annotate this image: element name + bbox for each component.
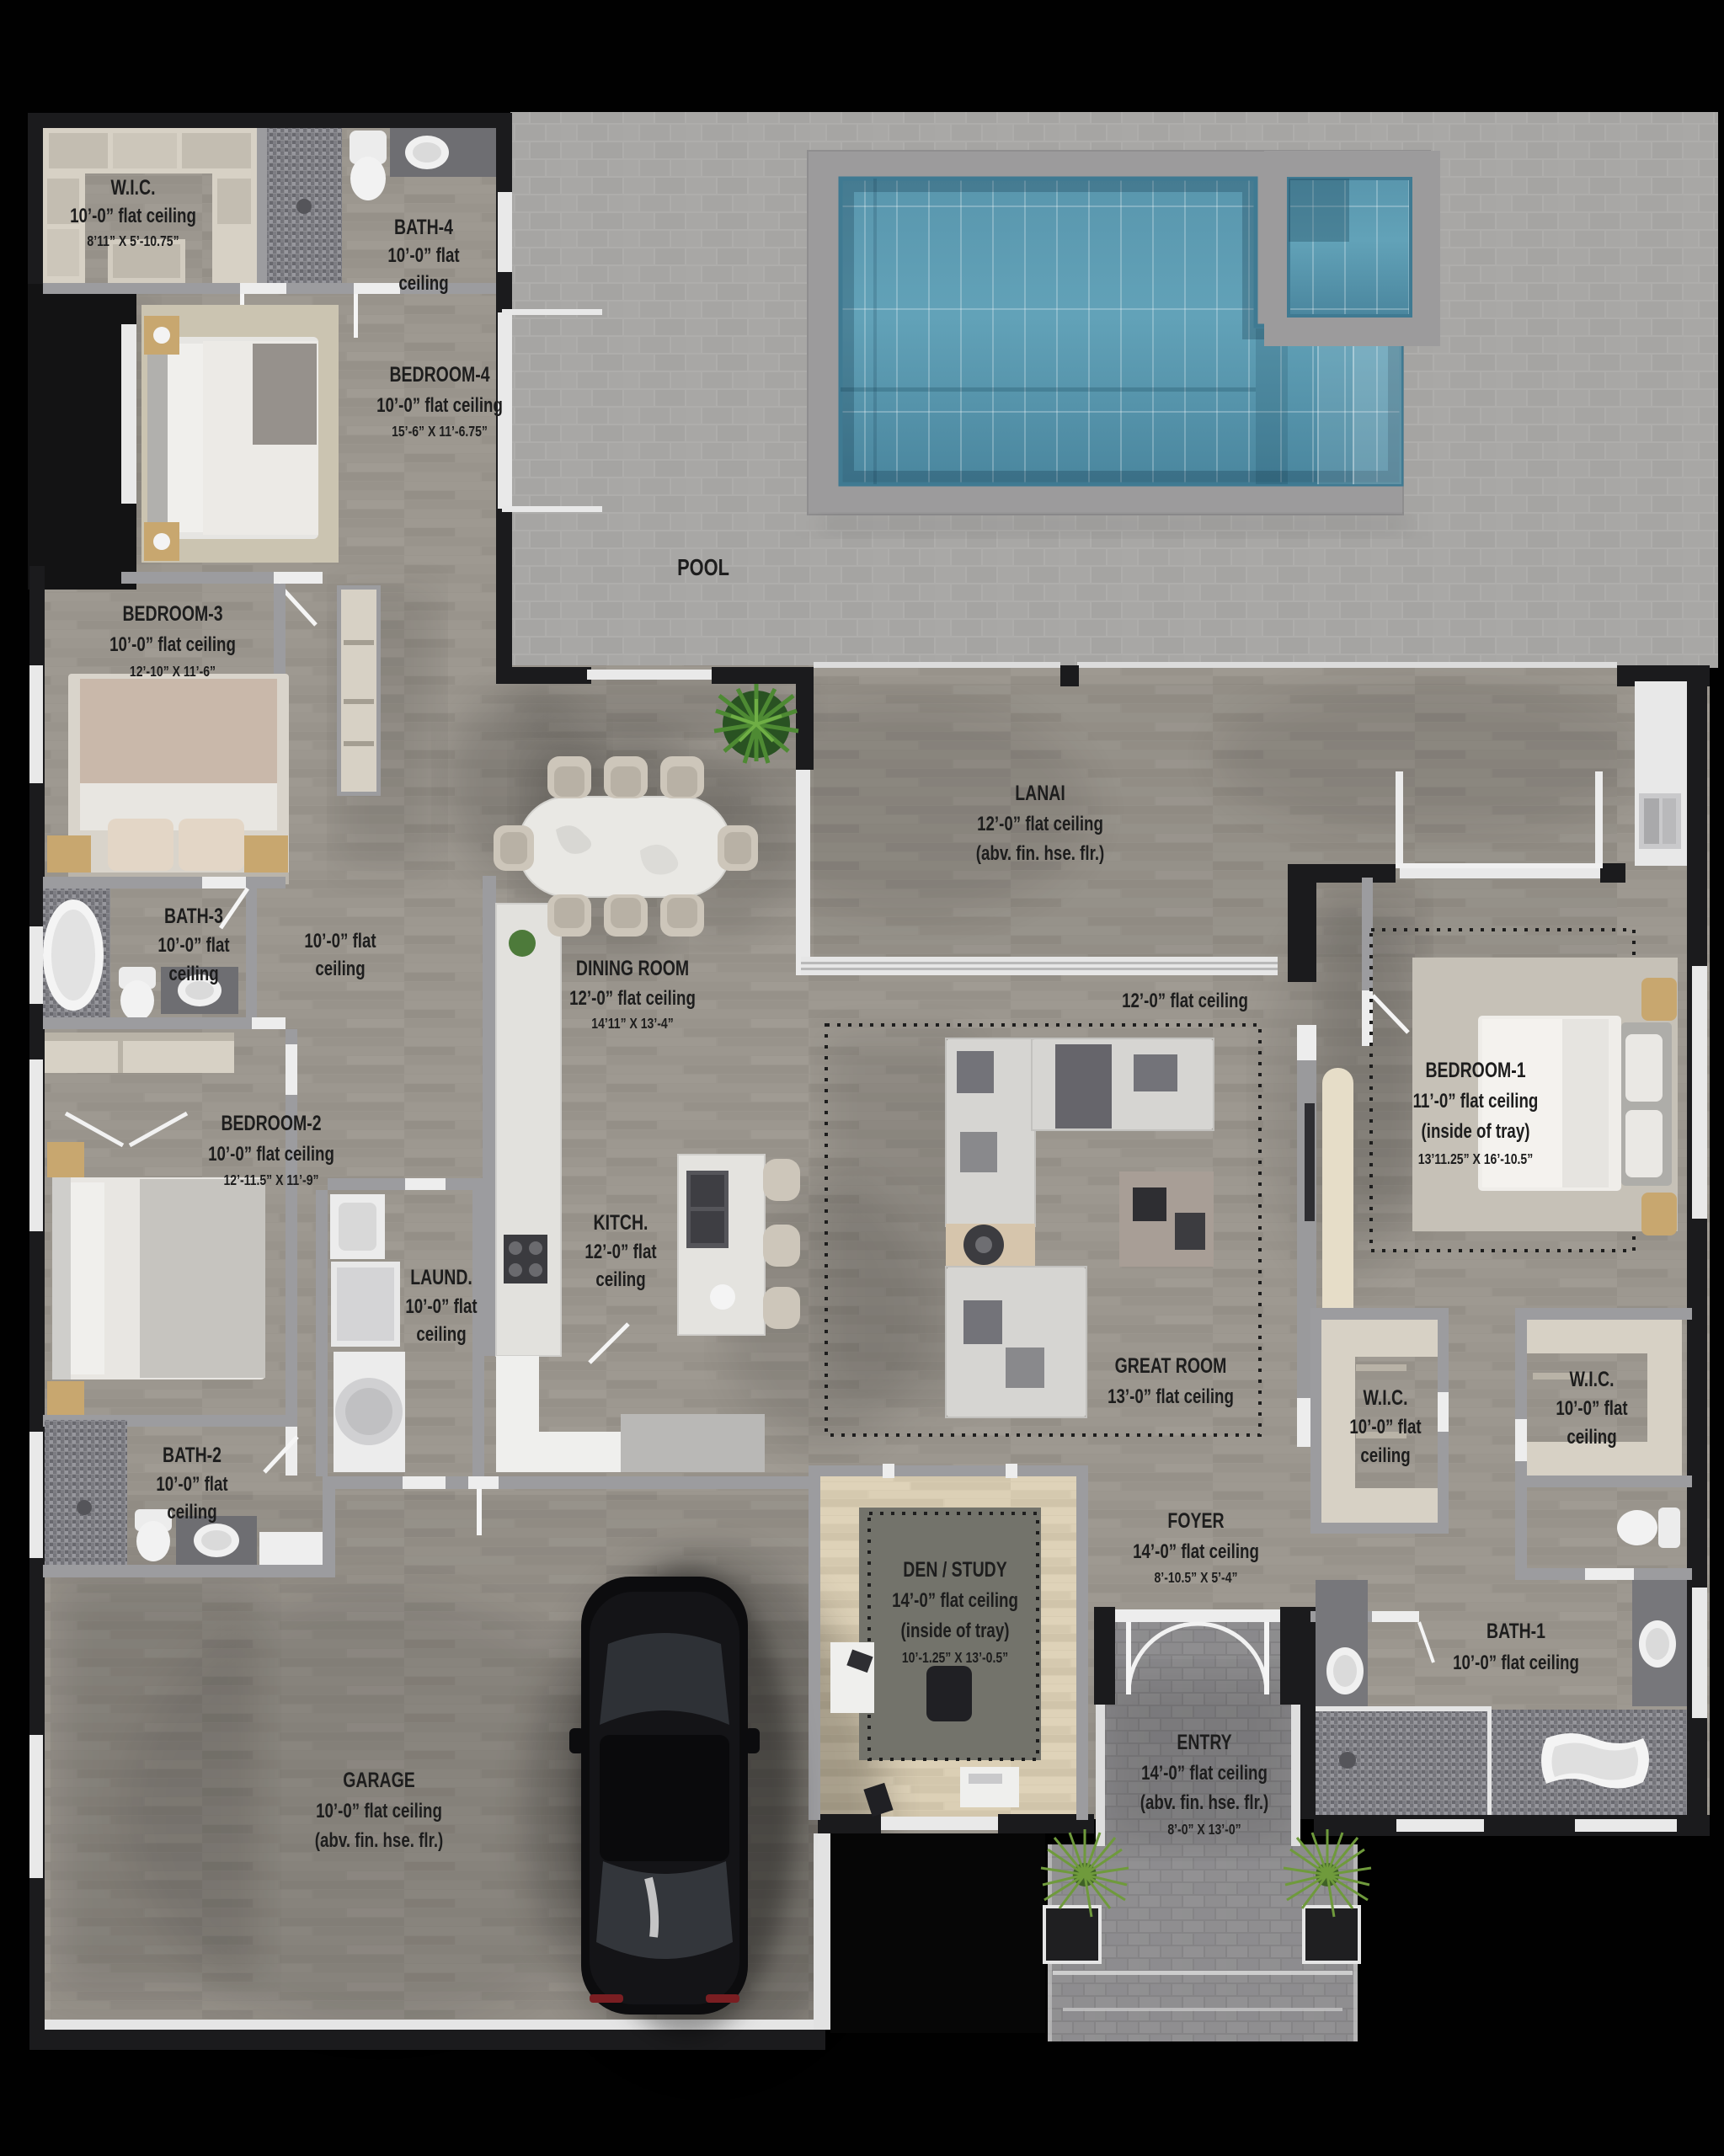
svg-text:14’-0” flat ceiling: 14’-0” flat ceiling [1133, 1540, 1259, 1563]
svg-text:10’-0” flat: 10’-0” flat [1349, 1416, 1421, 1438]
svg-text:10’-0” flat ceiling: 10’-0” flat ceiling [316, 1800, 442, 1822]
svg-text:ceiling: ceiling [1567, 1426, 1616, 1449]
svg-text:DEN / STUDY: DEN / STUDY [903, 1558, 1006, 1582]
svg-text:ceiling: ceiling [595, 1268, 645, 1291]
svg-text:8’-0” X 13’-0”: 8’-0” X 13’-0” [1167, 1821, 1241, 1838]
svg-text:10’-0” flat: 10’-0” flat [157, 934, 229, 957]
svg-text:14’11” X 13’-4”: 14’11” X 13’-4” [591, 1015, 673, 1032]
svg-text:10’-0” flat: 10’-0” flat [304, 930, 376, 953]
svg-text:10’-0” flat: 10’-0” flat [405, 1295, 477, 1318]
svg-text:14’-0” flat ceiling: 14’-0” flat ceiling [892, 1589, 1018, 1612]
svg-text:12’-0” flat ceiling: 12’-0” flat ceiling [1122, 990, 1248, 1012]
svg-text:12’-0” flat: 12’-0” flat [584, 1241, 656, 1263]
svg-text:ENTRY: ENTRY [1177, 1731, 1231, 1754]
svg-text:ceiling: ceiling [167, 1501, 216, 1524]
svg-text:LAUND.: LAUND. [410, 1266, 472, 1289]
svg-text:(inside of tray): (inside of tray) [1422, 1120, 1530, 1143]
svg-text:11’-0” flat ceiling: 11’-0” flat ceiling [1413, 1090, 1539, 1113]
svg-text:14’-0” flat ceiling: 14’-0” flat ceiling [1141, 1762, 1268, 1785]
svg-text:13’-0” flat ceiling: 13’-0” flat ceiling [1108, 1385, 1234, 1408]
svg-text:10’-0” flat: 10’-0” flat [156, 1473, 227, 1496]
svg-text:BEDROOM-3: BEDROOM-3 [122, 602, 222, 626]
svg-text:GREAT ROOM: GREAT ROOM [1115, 1354, 1227, 1378]
svg-text:10’-1.25” X 13’-0.5”: 10’-1.25” X 13’-0.5” [902, 1649, 1008, 1666]
svg-text:12’-11.5” X 11’-9”: 12’-11.5” X 11’-9” [223, 1171, 318, 1188]
svg-text:8’11” X 5’-10.75”: 8’11” X 5’-10.75” [87, 232, 179, 249]
svg-text:12’-0” flat ceiling: 12’-0” flat ceiling [977, 813, 1103, 835]
svg-text:ceiling: ceiling [416, 1323, 466, 1346]
svg-text:10’-0” flat ceiling: 10’-0” flat ceiling [376, 394, 503, 417]
svg-text:GARAGE: GARAGE [343, 1769, 415, 1792]
svg-text:(abv. fin. hse. flr.): (abv. fin. hse. flr.) [315, 1829, 444, 1852]
svg-text:ceiling: ceiling [1360, 1444, 1410, 1467]
svg-text:10’-0” flat ceiling: 10’-0” flat ceiling [1453, 1652, 1579, 1674]
svg-text:10’-0” flat ceiling: 10’-0” flat ceiling [70, 205, 196, 227]
svg-text:BEDROOM-1: BEDROOM-1 [1425, 1059, 1525, 1082]
svg-text:13’11.25” X 16’-10.5”: 13’11.25” X 16’-10.5” [1418, 1150, 1533, 1167]
svg-text:BATH-3: BATH-3 [164, 905, 223, 928]
svg-text:W.I.C.: W.I.C. [110, 176, 155, 200]
svg-text:W.I.C.: W.I.C. [1363, 1386, 1407, 1410]
svg-text:10’-0” flat: 10’-0” flat [1556, 1397, 1627, 1420]
svg-text:DINING ROOM: DINING ROOM [576, 957, 689, 980]
svg-text:15’-6” X 11’-6.75”: 15’-6” X 11’-6.75” [392, 423, 488, 440]
svg-text:(inside of tray): (inside of tray) [901, 1620, 1010, 1642]
svg-text:12’-10” X 11’-6”: 12’-10” X 11’-6” [130, 663, 216, 680]
svg-text:10’-0” flat: 10’-0” flat [387, 244, 459, 267]
svg-text:(abv. fin. hse. flr.): (abv. fin. hse. flr.) [1140, 1791, 1269, 1814]
svg-text:KITCH.: KITCH. [594, 1211, 649, 1235]
svg-text:ceiling: ceiling [315, 958, 365, 980]
svg-text:12’-0” flat ceiling: 12’-0” flat ceiling [569, 987, 696, 1010]
svg-text:10’-0” flat ceiling: 10’-0” flat ceiling [109, 633, 236, 656]
svg-text:W.I.C.: W.I.C. [1569, 1368, 1614, 1391]
svg-text:10’-0” flat ceiling: 10’-0” flat ceiling [208, 1143, 334, 1166]
svg-text:ceiling: ceiling [168, 963, 218, 985]
svg-text:ceiling: ceiling [398, 272, 448, 295]
svg-text:BEDROOM-2: BEDROOM-2 [221, 1112, 321, 1135]
svg-text:(abv. fin. hse. flr.): (abv. fin. hse. flr.) [976, 842, 1105, 865]
svg-text:POOL: POOL [677, 554, 729, 580]
svg-text:8’-10.5” X 5’-4”: 8’-10.5” X 5’-4” [1154, 1569, 1237, 1586]
svg-text:FOYER: FOYER [1167, 1509, 1224, 1533]
svg-text:BATH-2: BATH-2 [163, 1444, 222, 1467]
svg-text:LANAI: LANAI [1015, 782, 1065, 805]
svg-text:BEDROOM-4: BEDROOM-4 [389, 363, 490, 387]
svg-text:BATH-1: BATH-1 [1486, 1620, 1545, 1643]
svg-text:BATH-4: BATH-4 [394, 216, 453, 239]
